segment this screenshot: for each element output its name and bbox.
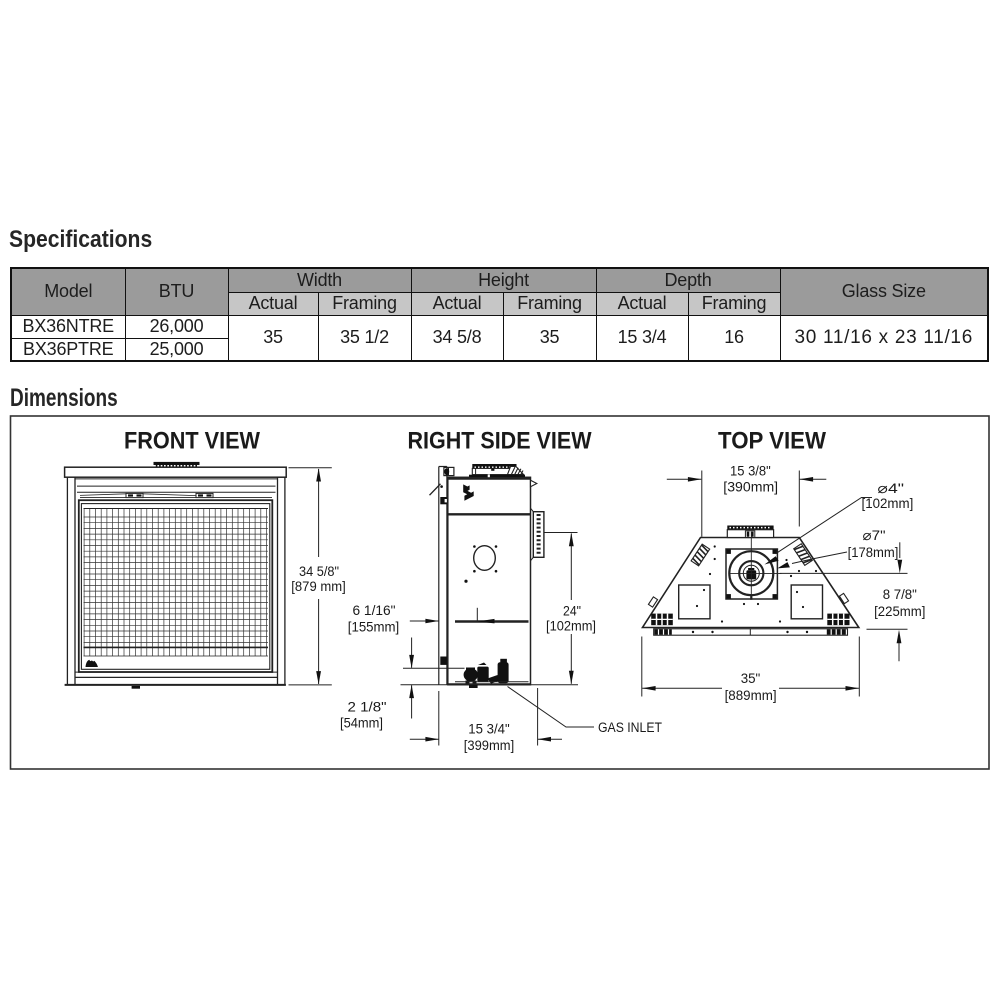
svg-text:FRONT VIEW: FRONT VIEW: [124, 428, 260, 455]
svg-text:[889mm]: [889mm]: [725, 688, 777, 704]
svg-text:[155mm]: [155mm]: [348, 620, 399, 636]
svg-text:GAS INLET: GAS INLET: [598, 720, 662, 736]
svg-text:[54mm]: [54mm]: [340, 716, 383, 732]
svg-text:15 3/8": 15 3/8": [730, 463, 771, 479]
svg-text:8 7/8": 8 7/8": [883, 587, 917, 603]
svg-text:24": 24": [563, 604, 581, 620]
svg-text:[225mm]: [225mm]: [874, 604, 925, 620]
svg-text:2 1/8": 2 1/8": [348, 700, 387, 716]
svg-text:[399mm]: [399mm]: [464, 738, 514, 754]
svg-text:[102mm]: [102mm]: [862, 496, 914, 512]
svg-text:6 1/16": 6 1/16": [353, 603, 396, 619]
svg-text:[390mm]: [390mm]: [723, 480, 778, 496]
svg-text:[102mm]: [102mm]: [546, 619, 596, 635]
svg-text:⌀7": ⌀7": [863, 528, 886, 544]
svg-text:⌀4": ⌀4": [877, 481, 904, 497]
svg-text:35": 35": [741, 671, 761, 687]
svg-text:34 5/8": 34 5/8": [299, 564, 339, 580]
svg-text:15 3/4": 15 3/4": [468, 722, 509, 738]
svg-text:TOP VIEW: TOP VIEW: [718, 428, 826, 455]
svg-text:RIGHT SIDE VIEW: RIGHT SIDE VIEW: [408, 428, 592, 455]
svg-text:[879 mm]: [879 mm]: [291, 579, 345, 595]
svg-text:[178mm]: [178mm]: [848, 545, 899, 561]
